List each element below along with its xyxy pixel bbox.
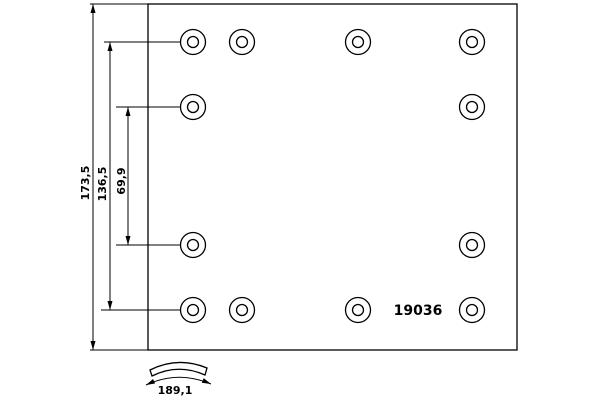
rivet-hole-outer <box>181 298 206 323</box>
part-number: 19036 <box>394 303 443 319</box>
dim-label-middle-span: 69,9 <box>115 167 128 194</box>
lining-face-outline <box>148 4 517 350</box>
dim-label-total-height: 173,5 <box>79 166 92 201</box>
rivet-hole-outer <box>230 298 255 323</box>
rivet-hole-inner <box>353 305 364 316</box>
rivet-hole-outer <box>460 95 485 120</box>
rivet-hole-inner <box>467 37 478 48</box>
rivet-holes <box>181 30 485 323</box>
rivet-hole-outer <box>346 30 371 55</box>
rivet-hole-inner <box>188 102 199 113</box>
drawing-svg: 173,5 136,5 69,9 19036 189,1 <box>0 0 600 400</box>
rivet-hole-inner <box>237 305 248 316</box>
brake-lining-technical-drawing: 173,5 136,5 69,9 19036 189,1 <box>0 0 600 400</box>
rivet-hole-outer <box>181 30 206 55</box>
dim-label-arc-length: 189,1 <box>158 384 193 397</box>
rivet-hole-outer <box>230 30 255 55</box>
dim-label-hole-span: 136,5 <box>96 167 109 202</box>
rivet-hole-outer <box>181 95 206 120</box>
rivet-hole-inner <box>188 37 199 48</box>
rivet-hole-outer <box>346 298 371 323</box>
rivet-hole-inner <box>467 305 478 316</box>
rivet-hole-outer <box>460 30 485 55</box>
rivet-hole-outer <box>181 233 206 258</box>
rivet-hole-outer <box>460 298 485 323</box>
rivet-hole-inner <box>467 102 478 113</box>
rivet-hole-inner <box>188 240 199 251</box>
rivet-hole-inner <box>353 37 364 48</box>
rivet-hole-outer <box>460 233 485 258</box>
rivet-hole-inner <box>467 240 478 251</box>
rivet-hole-inner <box>188 305 199 316</box>
rivet-hole-inner <box>237 37 248 48</box>
lining-profile-view <box>150 362 207 376</box>
